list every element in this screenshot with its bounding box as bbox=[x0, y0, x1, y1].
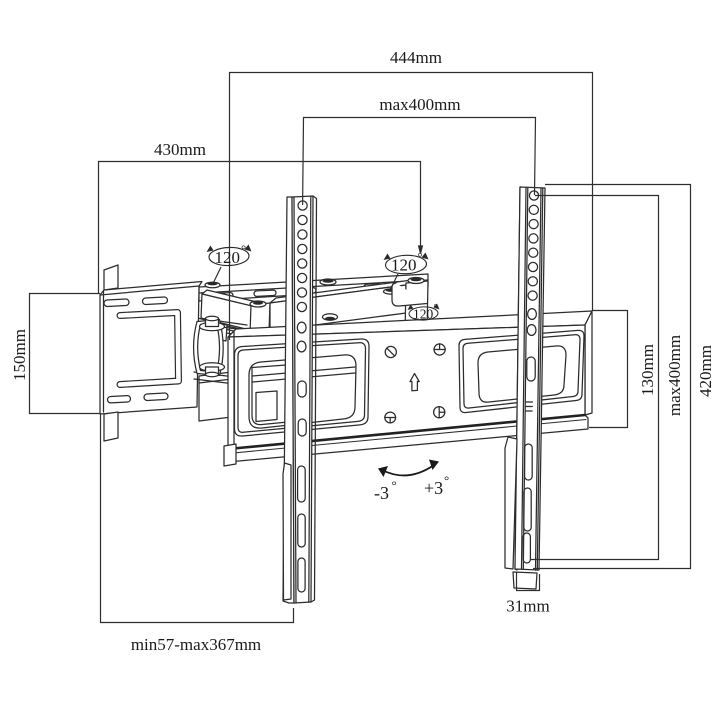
svg-text:°: ° bbox=[418, 249, 423, 264]
svg-text:-3: -3 bbox=[374, 483, 389, 503]
svg-text:120: 120 bbox=[215, 248, 241, 267]
svg-text:+3: +3 bbox=[424, 478, 443, 498]
svg-text:430mm: 430mm bbox=[154, 140, 206, 159]
svg-text:420mm: 420mm bbox=[696, 345, 715, 397]
svg-text:120: 120 bbox=[413, 307, 434, 322]
svg-text:130mm: 130mm bbox=[638, 344, 657, 396]
svg-text:min57-max367mm: min57-max367mm bbox=[131, 635, 261, 654]
svg-text:31mm: 31mm bbox=[506, 597, 549, 616]
svg-text:°: ° bbox=[434, 303, 438, 314]
svg-text:150mm: 150mm bbox=[10, 329, 29, 381]
svg-text:max400mm: max400mm bbox=[665, 335, 684, 416]
svg-text:°: ° bbox=[444, 473, 449, 488]
svg-text:max400mm: max400mm bbox=[379, 95, 460, 114]
svg-text:444mm: 444mm bbox=[390, 48, 442, 67]
svg-text:°: ° bbox=[392, 478, 397, 493]
svg-text:°: ° bbox=[241, 242, 246, 257]
svg-text:120: 120 bbox=[391, 256, 417, 275]
